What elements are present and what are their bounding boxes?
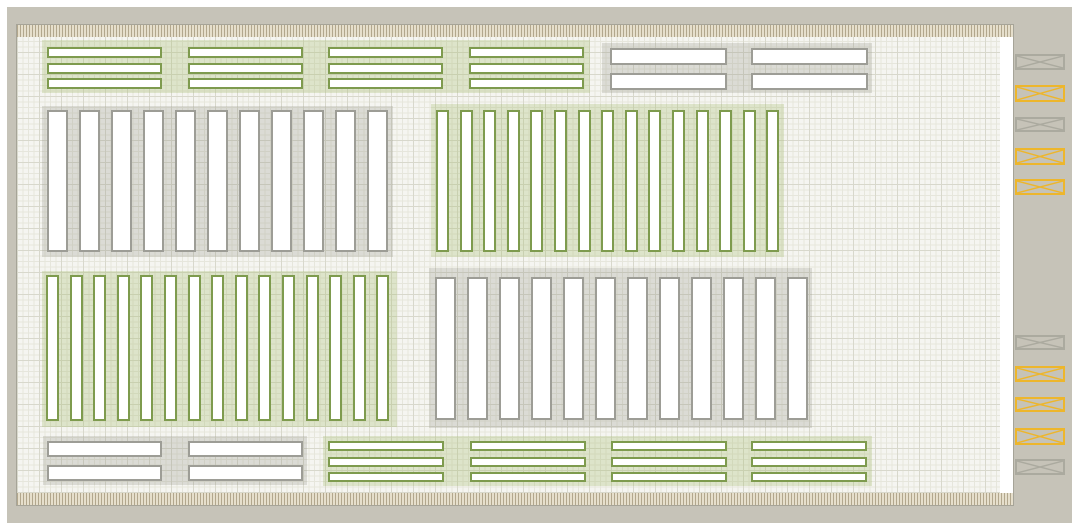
rack-bay[interactable] — [469, 47, 584, 58]
rack-bay[interactable] — [436, 110, 449, 252]
rack-bay[interactable] — [207, 110, 228, 252]
rack-bay[interactable] — [751, 48, 868, 65]
rack-bay[interactable] — [743, 110, 756, 252]
rack-bay[interactable] — [625, 110, 638, 252]
rack-bay[interactable] — [601, 110, 614, 252]
rack-bay[interactable] — [719, 110, 732, 252]
rack-bay[interactable] — [47, 78, 162, 89]
rack-bay[interactable] — [258, 275, 271, 421]
rack-bay[interactable] — [306, 275, 319, 421]
rack-bay[interactable] — [117, 275, 130, 421]
dock-door-icon[interactable] — [1015, 366, 1065, 382]
rack-bay[interactable] — [328, 63, 443, 74]
rack-bay[interactable] — [188, 275, 201, 421]
objects-layer — [0, 0, 1076, 530]
rack-bay[interactable] — [188, 441, 303, 457]
rack-bay[interactable] — [531, 277, 552, 420]
rack-bay[interactable] — [328, 472, 444, 482]
rack-bay[interactable] — [188, 465, 303, 481]
rack-bay[interactable] — [469, 63, 584, 74]
rack-bay[interactable] — [470, 472, 586, 482]
rack-bay[interactable] — [47, 110, 68, 252]
rack-bay[interactable] — [335, 110, 356, 252]
dock-door-icon[interactable] — [1015, 117, 1065, 132]
rack-bay[interactable] — [483, 110, 496, 252]
rack-bay[interactable] — [723, 277, 744, 420]
rack-bay[interactable] — [175, 110, 196, 252]
rack-bay[interactable] — [328, 457, 444, 467]
rack-bay[interactable] — [47, 63, 162, 74]
rack-top-gray[interactable] — [602, 43, 872, 93]
rack-bay[interactable] — [329, 275, 342, 421]
rack-mid-left-gray[interactable] — [42, 106, 393, 257]
rack-bay[interactable] — [188, 47, 303, 58]
rack-bay[interactable] — [435, 277, 456, 420]
dock-door-icon[interactable] — [1015, 54, 1065, 70]
rack-bay[interactable] — [627, 277, 648, 420]
rack-bottom-green[interactable] — [323, 436, 872, 486]
dock-door-icon[interactable] — [1015, 459, 1065, 475]
rack-bay[interactable] — [188, 63, 303, 74]
rack-bay[interactable] — [460, 110, 473, 252]
rack-bay[interactable] — [328, 441, 444, 451]
rack-bay[interactable] — [578, 110, 591, 252]
dock-door-icon[interactable] — [1015, 85, 1065, 102]
rack-bottom-gray[interactable] — [43, 436, 307, 485]
rack-bay[interactable] — [79, 110, 100, 252]
rack-bay[interactable] — [469, 78, 584, 89]
rack-bay[interactable] — [691, 277, 712, 420]
rack-bay[interactable] — [755, 277, 776, 420]
rack-bay[interactable] — [787, 277, 808, 420]
rack-bay[interactable] — [46, 275, 59, 421]
rack-bay[interactable] — [70, 275, 83, 421]
rack-bay[interactable] — [271, 110, 292, 252]
rack-bay[interactable] — [282, 275, 295, 421]
rack-bay[interactable] — [211, 275, 224, 421]
rack-mid-right-green[interactable] — [431, 104, 784, 257]
rack-bay[interactable] — [143, 110, 164, 252]
floor-plan — [0, 0, 1076, 530]
rack-bay[interactable] — [611, 441, 727, 451]
rack-bay[interactable] — [188, 78, 303, 89]
rack-bay[interactable] — [659, 277, 680, 420]
rack-bay[interactable] — [595, 277, 616, 420]
rack-bay[interactable] — [328, 78, 443, 89]
rack-bay[interactable] — [303, 110, 324, 252]
rack-bay[interactable] — [696, 110, 709, 252]
dock-door-icon[interactable] — [1015, 335, 1065, 350]
dock-door-icon[interactable] — [1015, 397, 1065, 412]
rack-bay[interactable] — [554, 110, 567, 252]
rack-bay[interactable] — [47, 441, 162, 457]
rack-bay[interactable] — [751, 472, 867, 482]
rack-bay[interactable] — [47, 47, 162, 58]
rack-bay[interactable] — [610, 73, 727, 90]
rack-bay[interactable] — [239, 110, 260, 252]
rack-bay[interactable] — [499, 277, 520, 420]
dock-door-icon[interactable] — [1015, 148, 1065, 165]
rack-bay[interactable] — [611, 457, 727, 467]
rack-bay[interactable] — [470, 457, 586, 467]
rack-bay[interactable] — [376, 275, 389, 421]
rack-bay[interactable] — [47, 465, 162, 481]
rack-bay[interactable] — [467, 277, 488, 420]
dock-door-icon[interactable] — [1015, 428, 1065, 445]
rack-bay[interactable] — [367, 110, 388, 252]
rack-bay[interactable] — [672, 110, 685, 252]
rack-bay[interactable] — [235, 275, 248, 421]
rack-bay[interactable] — [353, 275, 366, 421]
dock-door-icon[interactable] — [1015, 179, 1065, 195]
rack-bay[interactable] — [766, 110, 779, 252]
rack-bay[interactable] — [328, 47, 443, 58]
rack-bay[interactable] — [470, 441, 586, 451]
rack-bay[interactable] — [507, 110, 520, 252]
rack-bay[interactable] — [751, 441, 867, 451]
rack-bay[interactable] — [610, 48, 727, 65]
rack-bay[interactable] — [611, 472, 727, 482]
rack-bay[interactable] — [751, 457, 867, 467]
rack-bay[interactable] — [751, 73, 868, 90]
rack-bay[interactable] — [648, 110, 661, 252]
rack-bay[interactable] — [111, 110, 132, 252]
rack-low-right-gray[interactable] — [429, 268, 812, 428]
rack-bay[interactable] — [140, 275, 153, 421]
rack-bay[interactable] — [530, 110, 543, 252]
rack-bay[interactable] — [93, 275, 106, 421]
rack-low-left-green[interactable] — [42, 271, 397, 427]
rack-bay[interactable] — [164, 275, 177, 421]
rack-bay[interactable] — [563, 277, 584, 420]
rack-top-green[interactable] — [42, 40, 590, 93]
